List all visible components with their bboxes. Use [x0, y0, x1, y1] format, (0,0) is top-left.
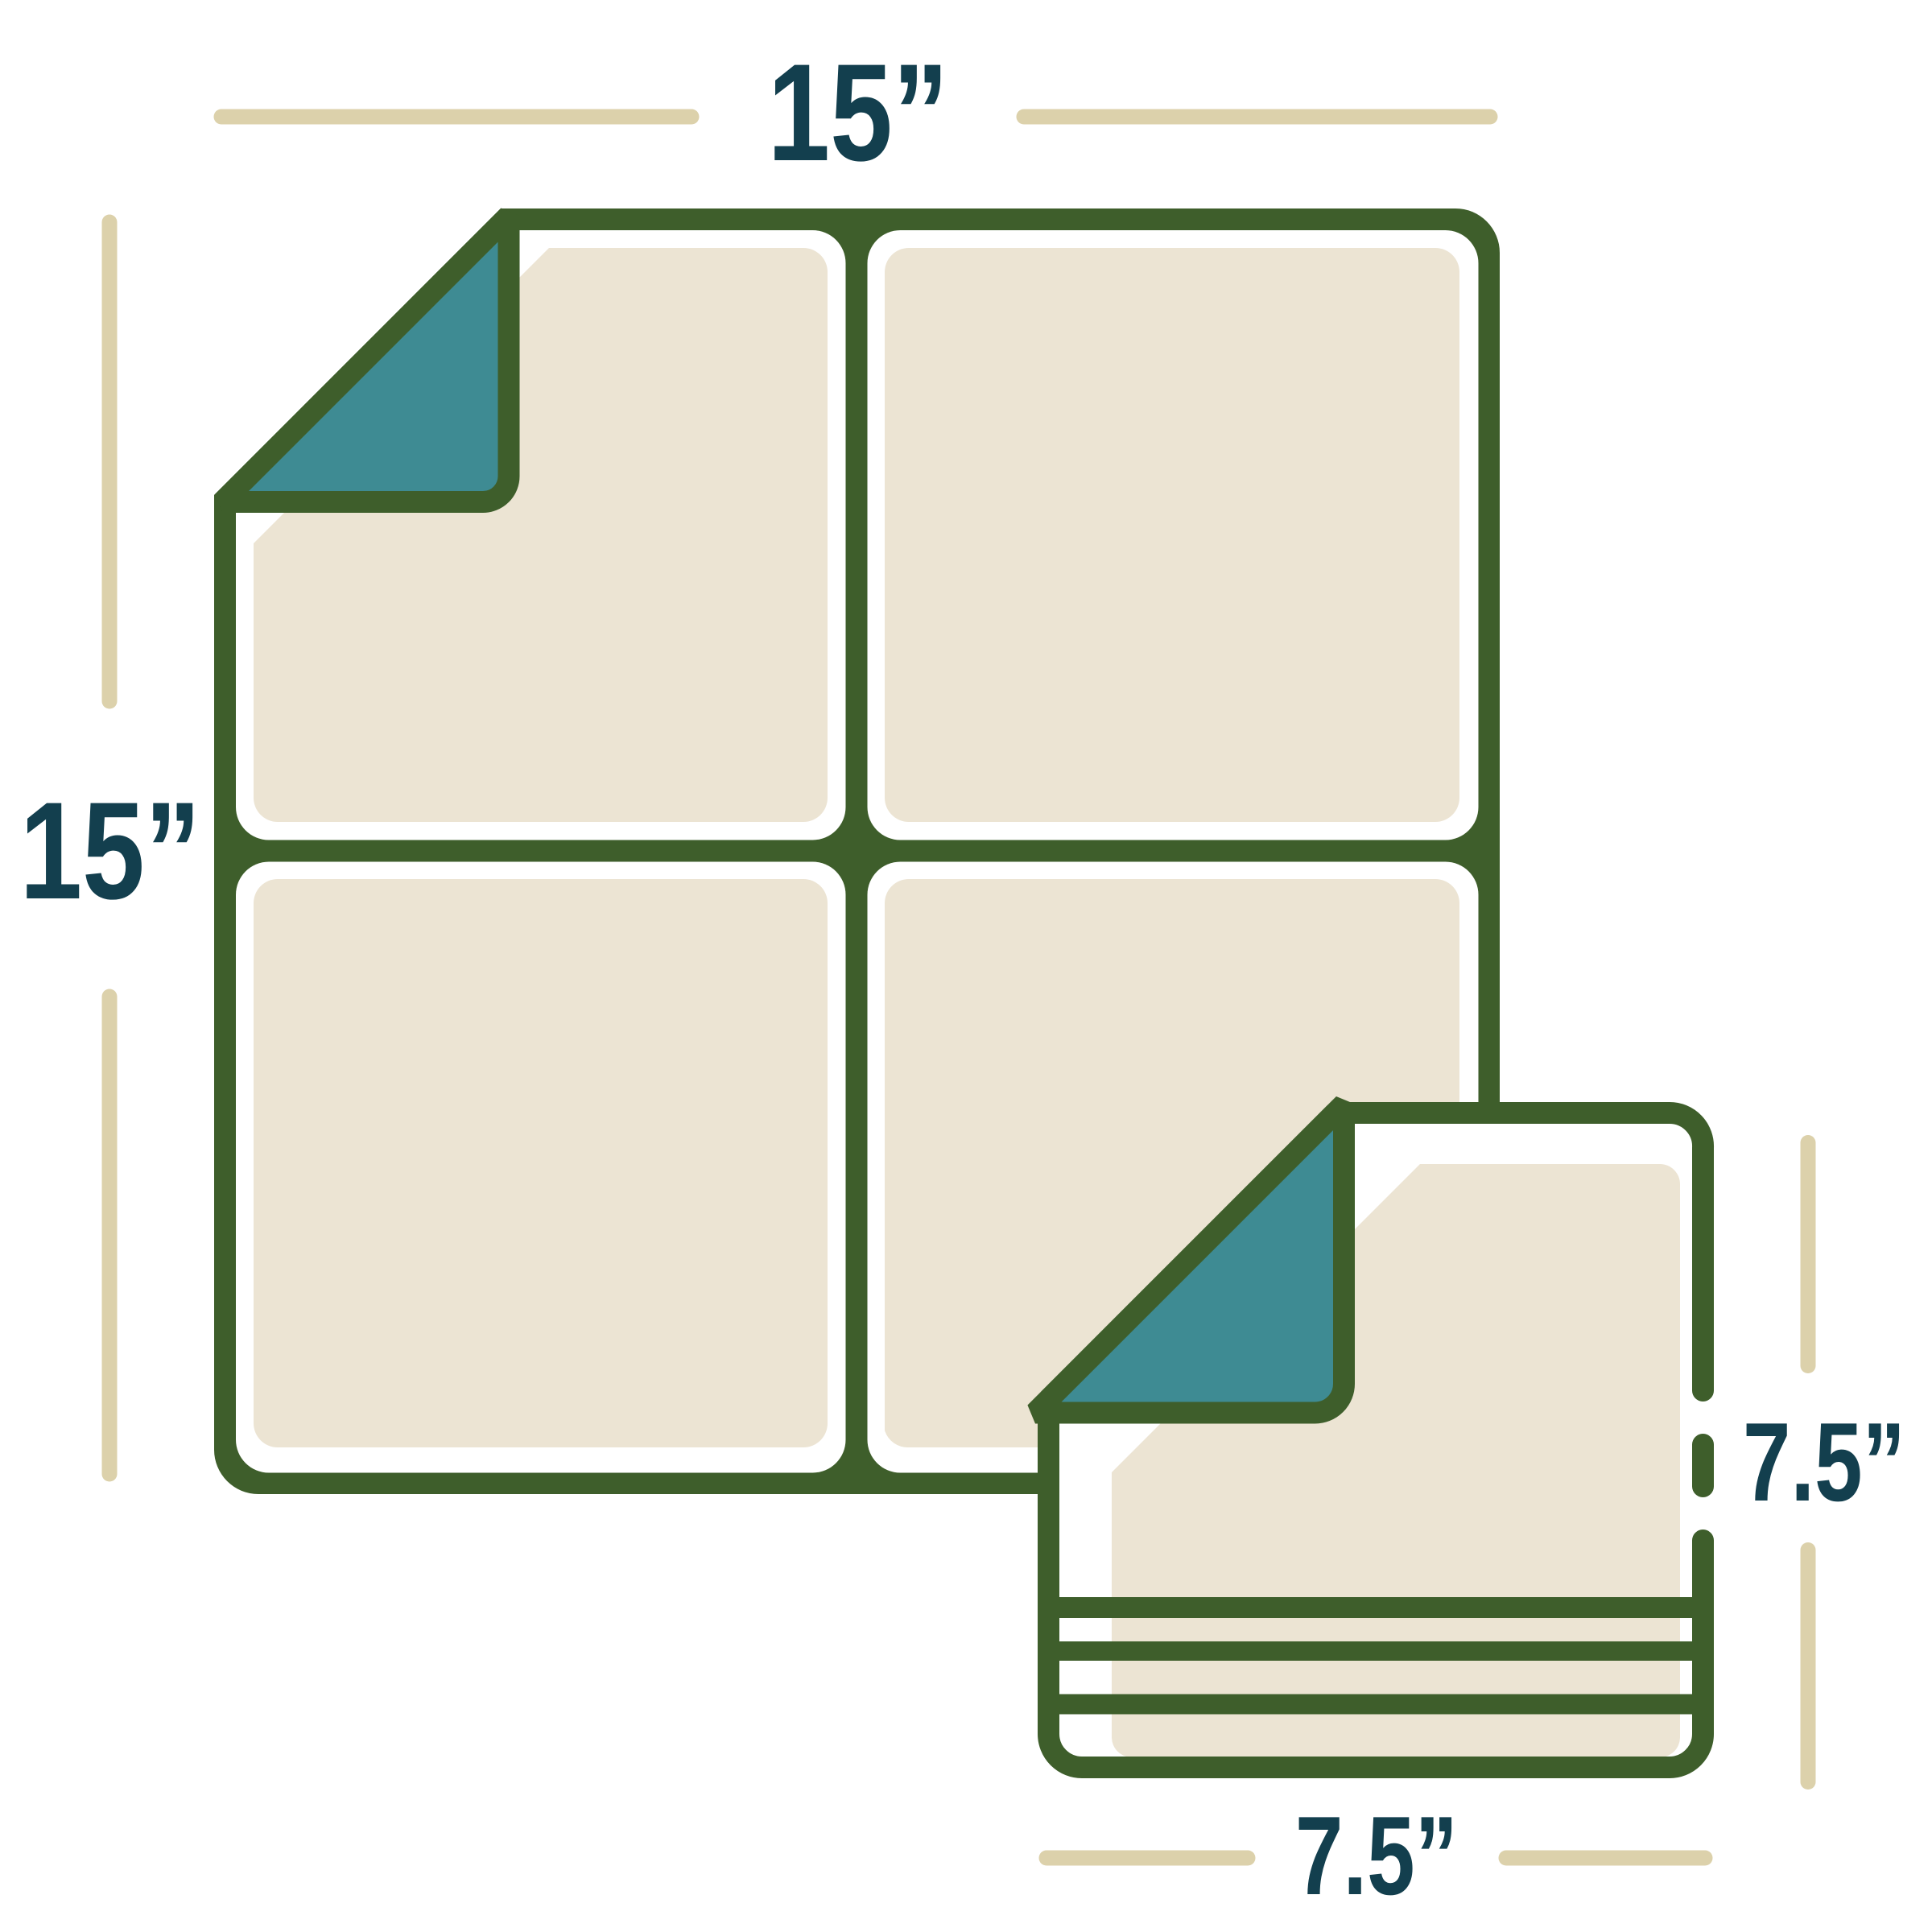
svg-text:7.5”: 7.5” [1295, 1794, 1458, 1918]
svg-text:15”: 15” [768, 35, 949, 190]
svg-text:7.5”: 7.5” [1743, 1400, 1905, 1525]
svg-text:15”: 15” [20, 774, 201, 928]
